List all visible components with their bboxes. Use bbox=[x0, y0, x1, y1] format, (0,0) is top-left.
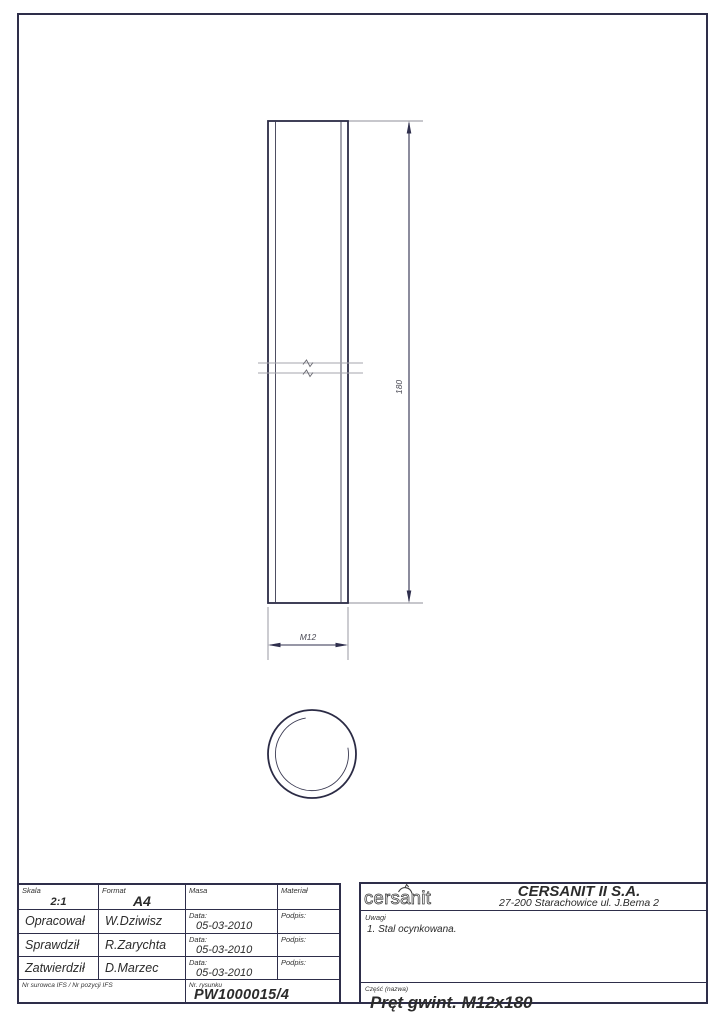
signature-label: Podpis: bbox=[278, 934, 339, 944]
company-info: CERSANIT II S.A. 27-200 Starachowice ul.… bbox=[456, 885, 702, 909]
material-cell: Materiał bbox=[278, 885, 339, 910]
date-label: Data: bbox=[186, 934, 277, 944]
role-cell: Opracował bbox=[19, 910, 99, 934]
arrow-left-icon bbox=[268, 643, 281, 648]
ifs-number-label: Nr surowca IFS / Nr pozycji IFS bbox=[19, 980, 185, 990]
format-cell: Format A4 bbox=[99, 885, 186, 910]
company-header: cersanit CERSANIT II S.A. 27-200 Starach… bbox=[361, 884, 706, 911]
person-text: D.Marzec bbox=[99, 957, 185, 975]
date-cell: Data: 05-03-2010 bbox=[186, 957, 278, 980]
date-label: Data: bbox=[186, 957, 277, 967]
notes-label: Uwagi bbox=[364, 912, 703, 922]
role-text: Opracował bbox=[19, 910, 98, 928]
company-address: 27-200 Starachowice ul. J.Bema 2 bbox=[456, 898, 702, 909]
arrow-up-icon bbox=[407, 121, 412, 134]
scale-value: 2:1 bbox=[19, 896, 98, 908]
person-text: R.Zarychta bbox=[99, 934, 185, 952]
date-value: 05-03-2010 bbox=[186, 944, 277, 956]
note-item: 1. Stal ocynkowana. bbox=[364, 924, 703, 935]
mass-label: Masa bbox=[186, 885, 277, 895]
material-label: Materiał bbox=[278, 885, 339, 895]
drawing-number-cell: Nr. rysunku PW1000015/4 bbox=[186, 980, 339, 1002]
cersanit-logo: cersanit bbox=[363, 884, 458, 910]
person-cell: W.Dziwisz bbox=[99, 910, 186, 934]
thread-dimension-text: M12 bbox=[300, 632, 317, 642]
arrow-right-icon bbox=[336, 643, 349, 648]
part-name-value: Pręt gwint. M12x180 bbox=[364, 993, 703, 1013]
signature-cell: Podpis: bbox=[278, 934, 339, 957]
scale-cell: Skala 2:1 bbox=[19, 885, 99, 910]
section-thread-arc bbox=[275, 718, 348, 790]
part-drawing: 180 M12 bbox=[0, 0, 723, 1024]
part-name-section: Część (nazwa) Pręt gwint. M12x180 bbox=[361, 983, 706, 1014]
drawing-number-value: PW1000015/4 bbox=[186, 987, 339, 1002]
role-cell: Zatwierdził bbox=[19, 957, 99, 980]
date-cell: Data: 05-03-2010 bbox=[186, 910, 278, 934]
person-cell: R.Zarychta bbox=[99, 934, 186, 957]
role-text: Sprawdził bbox=[19, 934, 98, 952]
notes-section: Uwagi 1. Stal ocynkowana. bbox=[361, 911, 706, 983]
date-label: Data: bbox=[186, 910, 277, 920]
date-value: 05-03-2010 bbox=[186, 967, 277, 979]
mass-cell: Masa bbox=[186, 885, 278, 910]
person-cell: D.Marzec bbox=[99, 957, 186, 980]
section-outer-circle bbox=[268, 710, 356, 798]
signature-label: Podpis: bbox=[278, 910, 339, 920]
person-text: W.Dziwisz bbox=[99, 910, 185, 928]
signature-cell: Podpis: bbox=[278, 910, 339, 934]
length-dimension-text: 180 bbox=[394, 380, 404, 394]
arrow-down-icon bbox=[407, 591, 412, 604]
role-text: Zatwierdził bbox=[19, 957, 98, 975]
logo-text: cersanit bbox=[364, 887, 431, 908]
ifs-number-cell: Nr surowca IFS / Nr pozycji IFS bbox=[19, 980, 186, 1002]
signature-cell: Podpis: bbox=[278, 957, 339, 980]
company-block: cersanit CERSANIT II S.A. 27-200 Starach… bbox=[359, 882, 708, 1004]
signature-label: Podpis: bbox=[278, 957, 339, 967]
date-cell: Data: 05-03-2010 bbox=[186, 934, 278, 957]
scale-label: Skala bbox=[19, 885, 98, 895]
engineering-drawing-sheet: 180 M12 Skala 2:1 Format A4 Masa bbox=[0, 0, 723, 1024]
role-cell: Sprawdził bbox=[19, 934, 99, 957]
title-block-table: Skala 2:1 Format A4 Masa Materiał Opraco… bbox=[17, 883, 341, 1004]
format-value: A4 bbox=[99, 893, 185, 909]
date-value: 05-03-2010 bbox=[186, 920, 277, 932]
